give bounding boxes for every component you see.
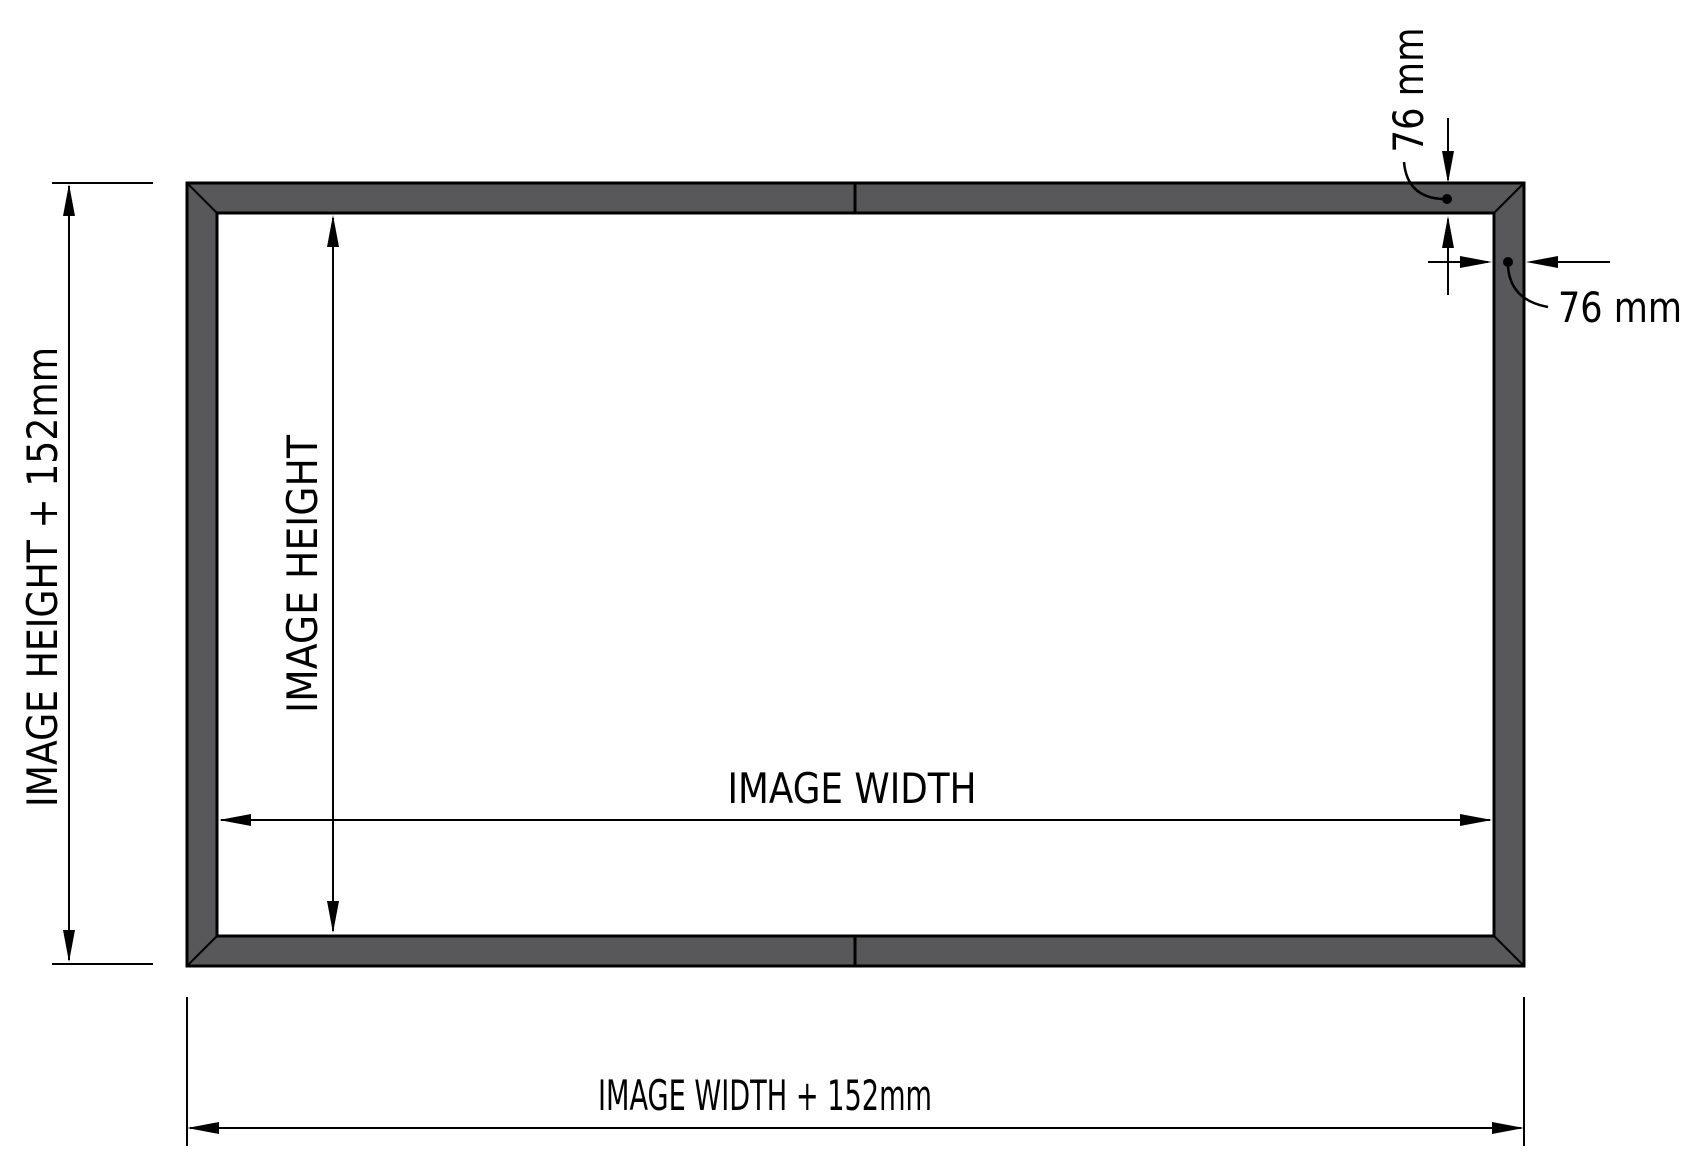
image-width-label: IMAGE WIDTH — [728, 764, 977, 813]
frame-dimension-diagram: IMAGE HEIGHT + 152mm IMAGE HEIGHT IMAGE … — [0, 0, 1682, 1162]
arrowhead-down — [327, 901, 339, 933]
side-bar-thickness-label: 76 mm — [1558, 283, 1682, 332]
outer-width-label: IMAGE WIDTH + 152mm — [598, 1071, 932, 1120]
dim-image-width: IMAGE WIDTH — [219, 764, 1492, 826]
dim-outer-height: IMAGE HEIGHT + 152mm — [18, 183, 153, 964]
dim-outer-width: IMAGE WIDTH + 152mm — [187, 997, 1524, 1146]
arrowhead-right — [1460, 256, 1492, 268]
reference-dot — [1503, 257, 1513, 267]
arrowhead-down — [1442, 151, 1454, 183]
frame-body — [187, 183, 1524, 966]
dim-top-bar-thickness: 76 mm — [1384, 28, 1454, 296]
arrowhead-down — [63, 930, 75, 962]
drawing-area: IMAGE HEIGHT + 152mm IMAGE HEIGHT IMAGE … — [0, 0, 1682, 1162]
dim-side-bar-thickness: 76 mm — [1428, 256, 1682, 332]
outer-height-label: IMAGE HEIGHT + 152mm — [18, 347, 67, 807]
arrowhead-left — [219, 814, 251, 826]
arrowhead-left — [187, 1122, 219, 1134]
arrowhead-right — [1492, 1122, 1524, 1134]
arrowhead-up — [1442, 216, 1454, 248]
arrowhead-up — [327, 215, 339, 247]
dim-inner-height: IMAGE HEIGHT — [278, 215, 339, 933]
top-bar-thickness-label: 76 mm — [1384, 28, 1433, 153]
arrowhead-up — [63, 184, 75, 216]
inner-height-label: IMAGE HEIGHT — [278, 435, 327, 713]
arrowhead-right — [1460, 814, 1492, 826]
reference-dot — [1442, 194, 1452, 204]
